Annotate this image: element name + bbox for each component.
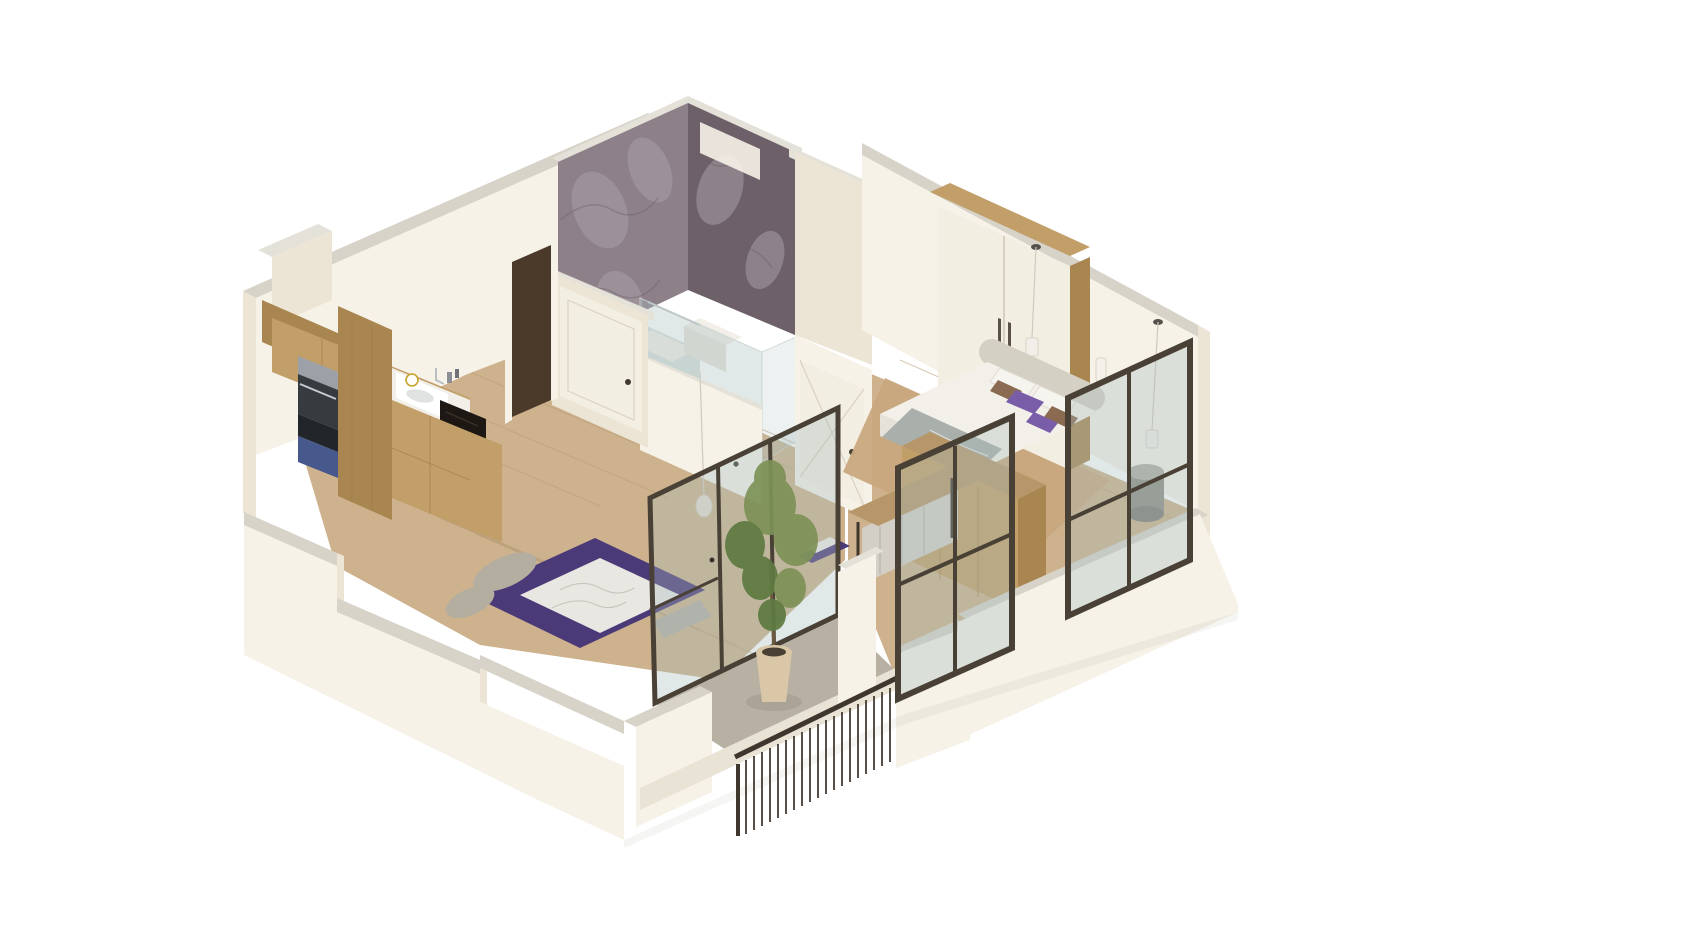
plant-pot — [756, 645, 792, 702]
wall-clock — [406, 374, 418, 386]
appliance-stack — [298, 356, 338, 478]
bedroom-window-1 — [898, 417, 1012, 699]
entry-door — [505, 242, 558, 424]
pantry-column — [338, 306, 392, 520]
apartment-3d-render — [0, 0, 1685, 948]
balcony-left-parapet — [624, 686, 712, 827]
floorplan-canvas — [0, 0, 1685, 948]
door-handle — [625, 379, 631, 385]
door-handle — [710, 558, 715, 563]
